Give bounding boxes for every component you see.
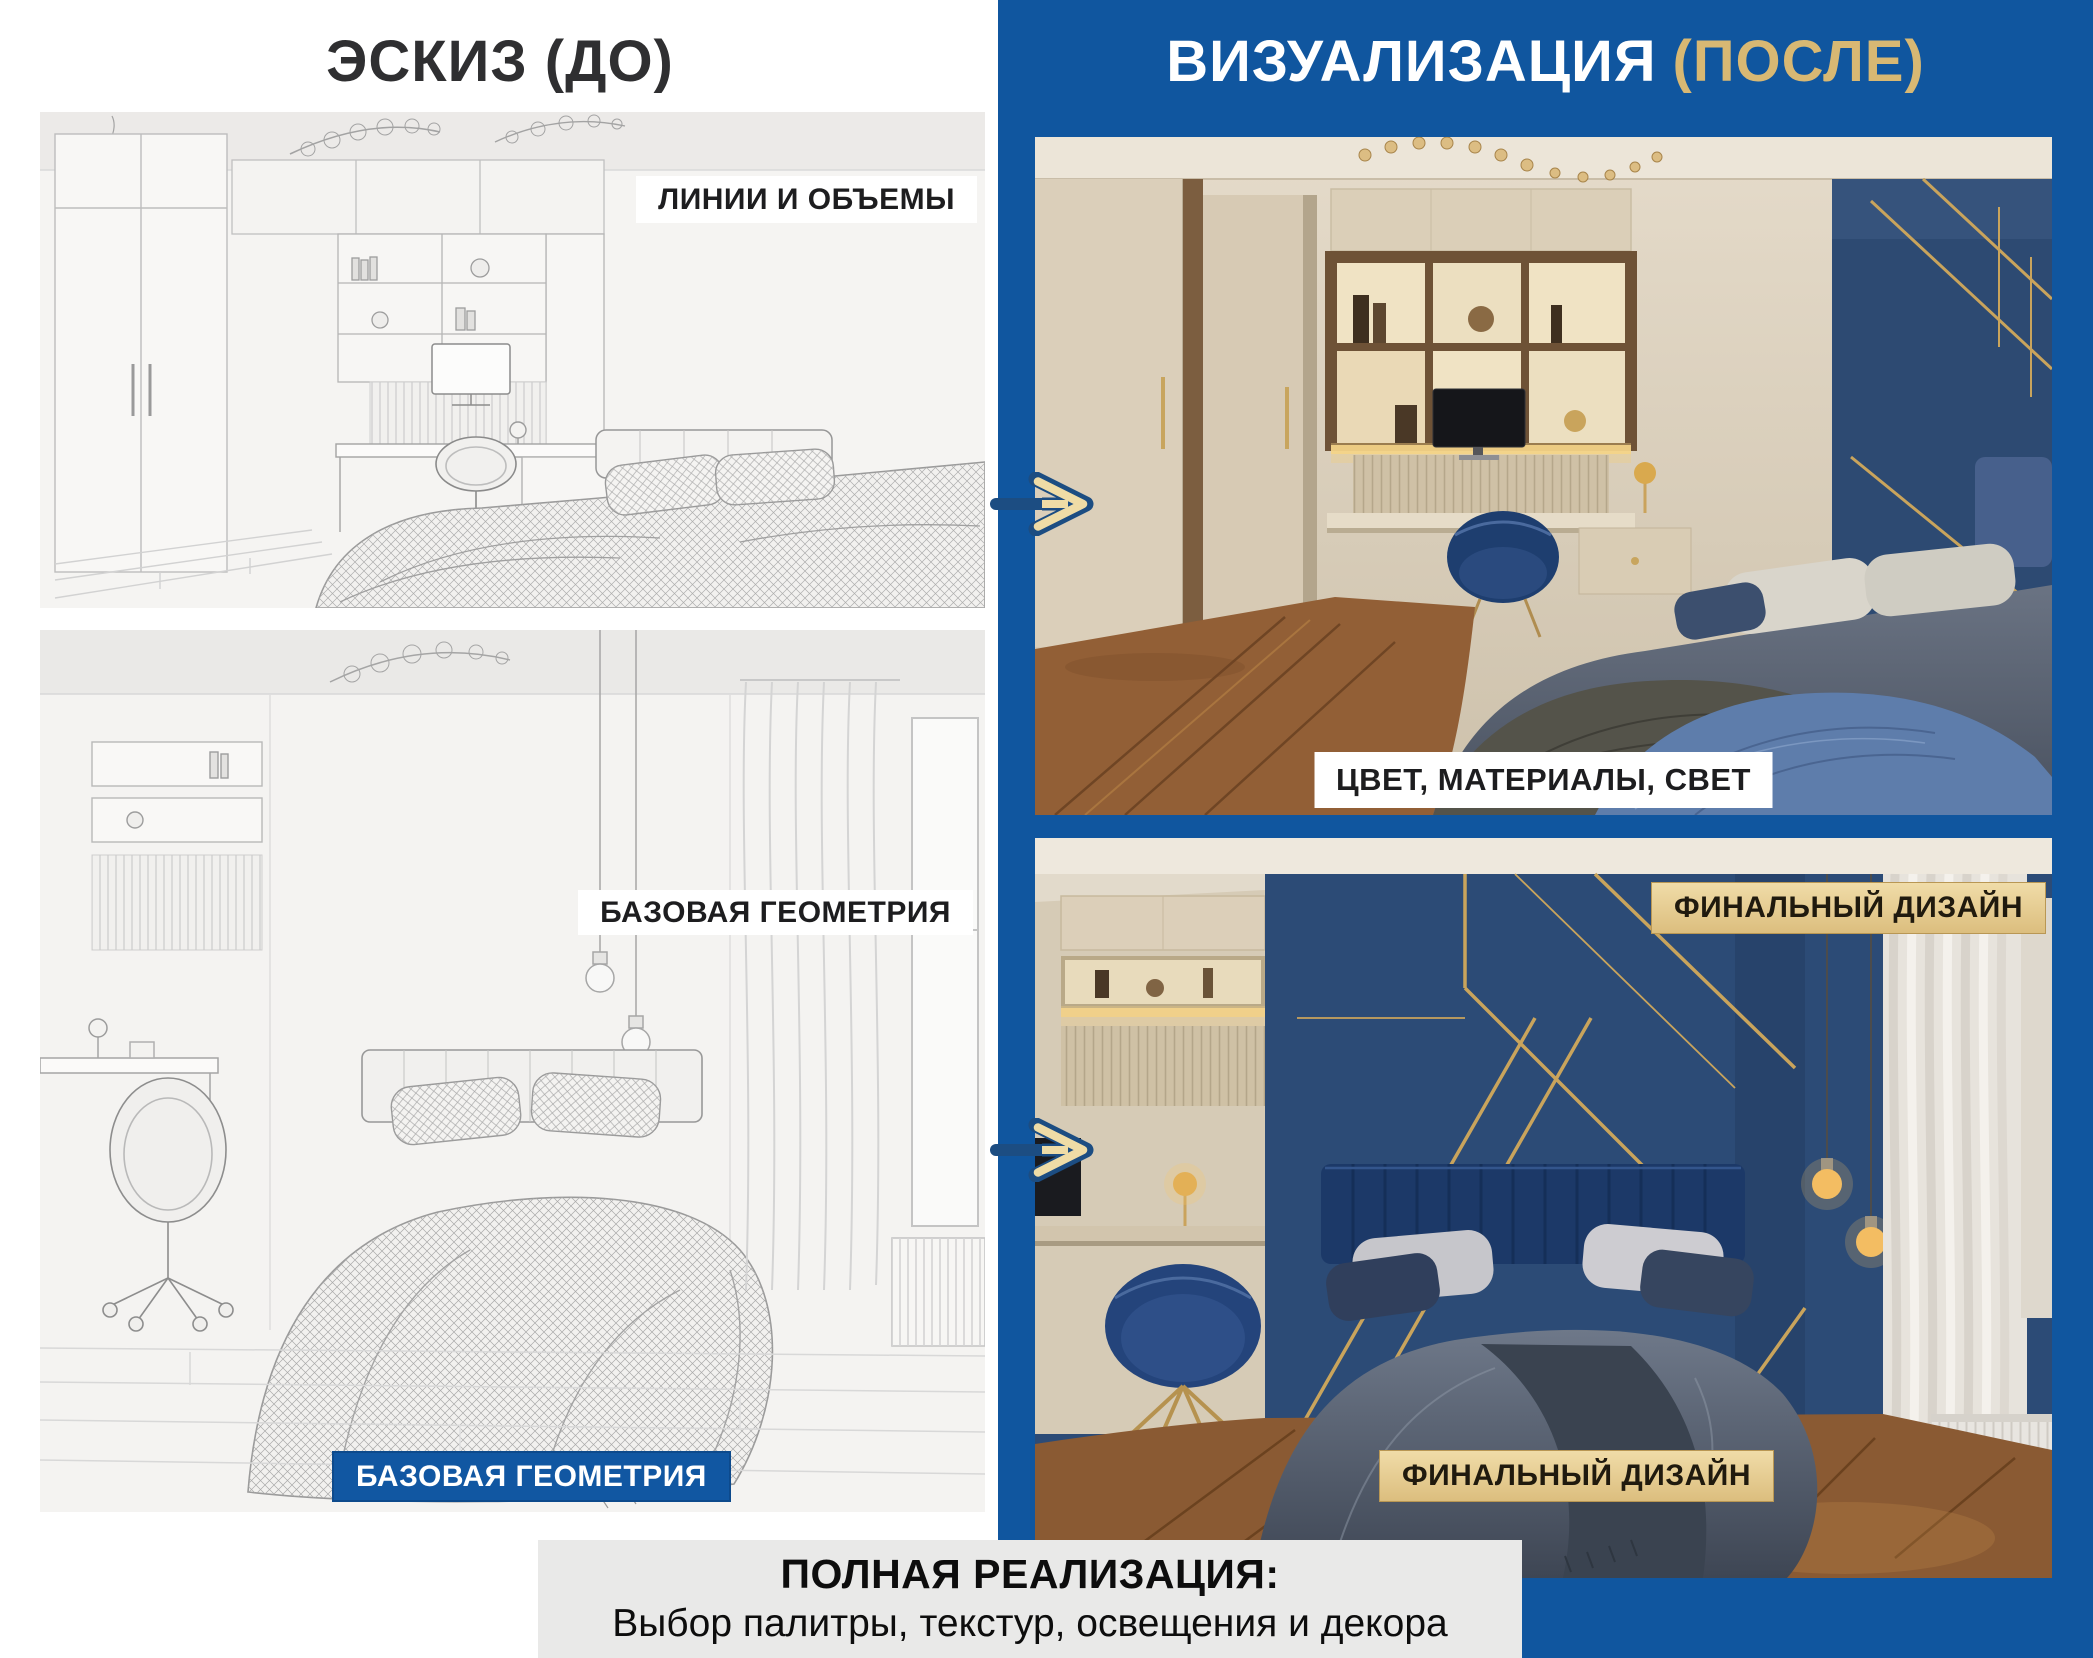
footer-subtitle: Выбор палитры, текстур, освещения и деко…	[612, 1601, 1447, 1648]
right-title-main: ВИЗУАЛИЗАЦИЯ	[1166, 28, 1656, 95]
panel-render-final-design: ФИНАЛЬНЫЙ ДИЗАЙН ФИНАЛЬНЫЙ ДИЗАЙН	[1035, 838, 2052, 1578]
right-column-title: ВИЗУАЛИЗАЦИЯ (ПОСЛЕ)	[998, 26, 2093, 96]
panel-sketch-base-geometry: БАЗОВАЯ ГЕОМЕТРИЯ БАЗОВАЯ ГЕОМЕТРИЯ	[40, 630, 985, 1512]
upper-cabinet-render	[1061, 896, 1265, 1026]
footer-summary-box: ПОЛНАЯ РЕАЛИЗАЦИЯ: Выбор палитры, тексту…	[538, 1540, 1522, 1658]
wardrobe-sketch	[55, 134, 227, 572]
panel-sketch-lines-volumes: ЛИНИИ И ОБЪЕМЫ	[40, 112, 985, 608]
label-lines-volumes: ЛИНИИ И ОБЪЕМЫ	[636, 176, 977, 223]
curtains-render	[1883, 874, 2027, 1474]
label-lines-volumes-text: ЛИНИИ И ОБЪЕМЫ	[658, 183, 955, 217]
label-base-geometry-top: БАЗОВАЯ ГЕОМЕТРИЯ	[578, 890, 973, 935]
label-final-design-bottom: ФИНАЛЬНЫЙ ДИЗАЙН	[1379, 1450, 1774, 1502]
label-color-materials-light: ЦВЕТ, МАТЕРИАЛЫ, СВЕТ	[1314, 752, 1773, 808]
label-base-geometry-bottom-text: БАЗОВАЯ ГЕОМЕТРИЯ	[356, 1460, 707, 1494]
footer-title: ПОЛНАЯ РЕАЛИЗАЦИЯ:	[780, 1550, 1279, 1599]
left-column-title: ЭСКИЗ (ДО)	[0, 26, 1000, 96]
wardrobe-door	[1035, 179, 1183, 647]
bedroom-bed-wireframe-sketch	[40, 630, 985, 1512]
label-color-materials-light-text: ЦВЕТ, МАТЕРИАЛЫ, СВЕТ	[1336, 762, 1751, 798]
arrow-right-icon	[990, 1118, 1094, 1182]
upper-cabinets-sketch	[232, 160, 604, 234]
arrow-right-icon	[990, 472, 1094, 536]
before-after-collage: ЭСКИЗ (ДО) ВИЗУАЛИЗАЦИЯ (ПОСЛЕ)	[0, 0, 2093, 1658]
left-title-text: ЭСКИЗ (ДО)	[326, 28, 674, 95]
window-frame	[2021, 898, 2052, 1318]
bedroom-desk-color-render	[1035, 137, 2052, 815]
label-final-design-bottom-text: ФИНАЛЬНЫЙ ДИЗАЙН	[1402, 1459, 1751, 1493]
label-final-design-top: ФИНАЛЬНЫЙ ДИЗАЙН	[1651, 882, 2046, 934]
right-title-accent: (ПОСЛЕ)	[1673, 28, 1925, 95]
panel-render-color-materials: ЦВЕТ, МАТЕРИАЛЫ, СВЕТ	[1035, 137, 2052, 815]
label-base-geometry-bottom: БАЗОВАЯ ГЕОМЕТРИЯ	[332, 1451, 731, 1502]
radiator-sketch	[892, 1238, 985, 1346]
label-base-geometry-top-text: БАЗОВАЯ ГЕОМЕТРИЯ	[600, 896, 951, 930]
label-final-design-top-text: ФИНАЛЬНЫЙ ДИЗАЙН	[1674, 891, 2023, 925]
window-sketch	[912, 718, 978, 1226]
